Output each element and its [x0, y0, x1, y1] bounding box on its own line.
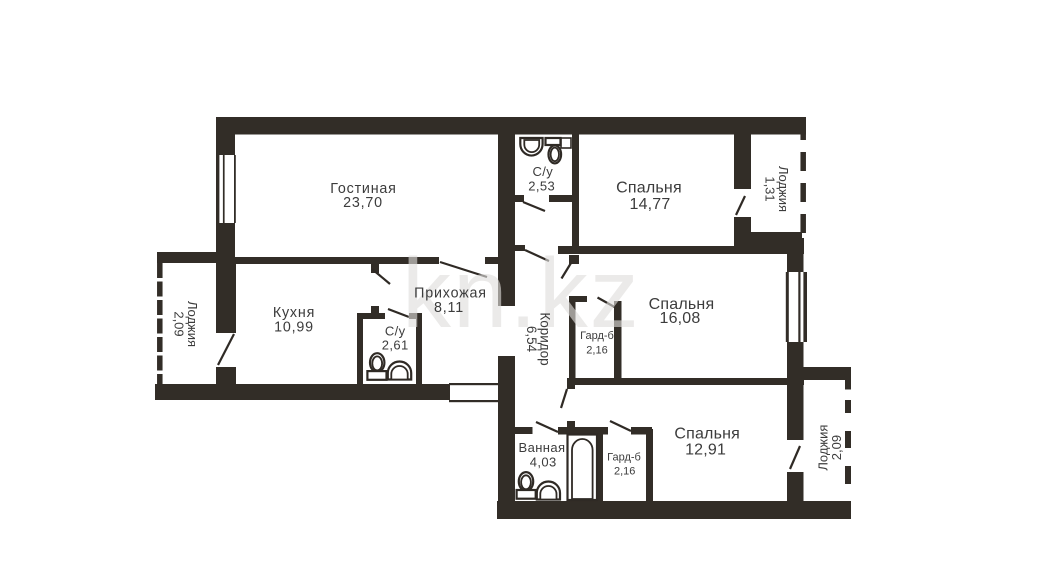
svg-text:23,70: 23,70	[343, 195, 383, 211]
svg-text:2,61: 2,61	[382, 338, 409, 353]
svg-text:Гард-б: Гард-б	[580, 330, 614, 342]
svg-text:Гард-б: Гард-б	[607, 452, 641, 464]
svg-text:12,91: 12,91	[685, 442, 726, 459]
svg-text:8,11: 8,11	[434, 300, 464, 316]
svg-text:С/у: С/у	[385, 324, 406, 339]
svg-text:16,08: 16,08	[659, 310, 700, 327]
svg-text:14,77: 14,77	[629, 196, 670, 213]
svg-text:2,16: 2,16	[614, 466, 635, 478]
svg-text:Спальня: Спальня	[616, 180, 682, 197]
svg-text:Ванная: Ванная	[519, 440, 566, 455]
svg-text:С/у: С/у	[532, 164, 553, 179]
svg-text:10,99: 10,99	[274, 320, 314, 336]
svg-text:2,16: 2,16	[586, 345, 607, 357]
svg-text:Спальня: Спальня	[674, 426, 740, 443]
svg-text:2,53: 2,53	[528, 179, 555, 194]
svg-text:4,03: 4,03	[530, 454, 557, 469]
